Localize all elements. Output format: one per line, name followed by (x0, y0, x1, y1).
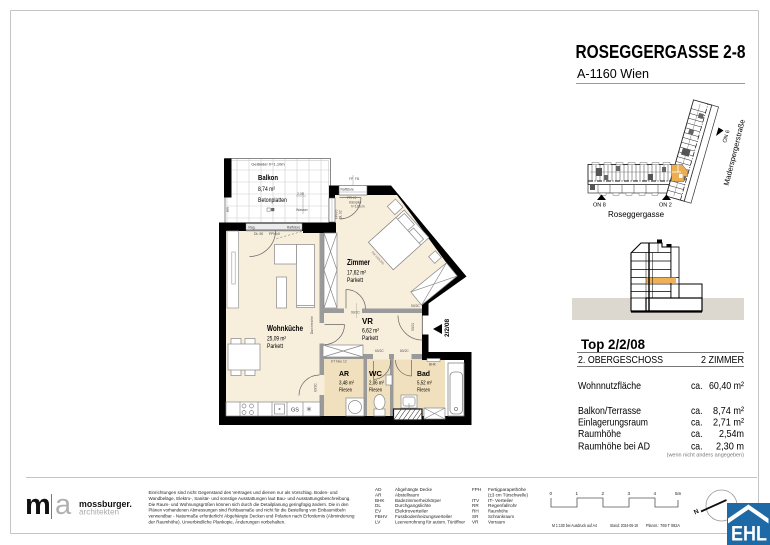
svg-text:Maderspergerstraße: Maderspergerstraße (722, 118, 747, 186)
svg-text:ON 2: ON 2 (659, 203, 672, 209)
svg-text:ITV: ITV (472, 498, 480, 503)
svg-text:EHL: EHL (731, 522, 767, 545)
svg-text:80/2C: 80/2C (400, 349, 409, 353)
svg-text:2: 2 (602, 491, 605, 496)
svg-text:ON 8: ON 8 (593, 203, 606, 209)
svg-text:WC: WC (369, 369, 383, 378)
svg-text:Rag.: Rag. (249, 226, 256, 230)
svg-text:Abstellraum: Abstellraum (395, 492, 419, 497)
svg-text:FPH: FPH (472, 487, 481, 492)
svg-text:4: 4 (654, 491, 657, 496)
svg-text:Plänen vorhandenen Abmessungen: Plänen vorhandenen Abmessungen sind Rohb… (149, 508, 346, 513)
svg-text:M 1:100 bei Ausdruck auf A4: M 1:100 bei Ausdruck auf A4 (552, 523, 597, 528)
svg-text:VR: VR (362, 317, 373, 326)
svg-text:Parkett: Parkett (347, 278, 363, 284)
svg-text:AR: AR (375, 492, 382, 497)
svg-text:Einlagerungsraum: Einlagerungsraum (578, 417, 648, 429)
svg-text:N: N (693, 508, 700, 516)
svg-text:(±3 cm Türschwelle): (±3 cm Türschwelle) (488, 492, 528, 497)
svg-text:DL 92: DL 92 (339, 210, 343, 219)
svg-text:VR: VR (472, 519, 479, 524)
svg-text:Plannr.: 769 T 082A: Plannr.: 769 T 082A (646, 523, 681, 528)
svg-text:Abgehängte Decke: Abgehängte Decke (395, 487, 432, 492)
svg-text:FPH 0: FPH 0 (347, 196, 357, 200)
svg-text:Vorraum: Vorraum (488, 519, 505, 524)
svg-text:Geländer h=1,10m: Geländer h=1,10m (251, 162, 285, 167)
svg-text:5m: 5m (675, 491, 682, 496)
svg-text:Fussbodenheizungsverteiler: Fussbodenheizungsverteiler (395, 514, 452, 519)
svg-text:Raffstore: Raffstore (341, 188, 354, 192)
svg-text:Bad: Bad (417, 369, 430, 378)
svg-text:AD: AD (375, 487, 382, 492)
svg-text:2,06 m²: 2,06 m² (369, 381, 384, 387)
svg-text:Betonplatten: Betonplatten (258, 198, 287, 204)
svg-text:2/2/08: 2/2/08 (444, 319, 451, 337)
svg-text:2,30 m: 2,30 m (716, 441, 744, 453)
svg-text:Fliesen: Fliesen (369, 388, 382, 394)
svg-text:1: 1 (576, 491, 579, 496)
svg-text:2,00: 2,00 (297, 192, 304, 196)
svg-text:FB: FB (355, 177, 360, 181)
svg-text:90/2C: 90/2C (351, 311, 360, 315)
svg-text:SR: SR (472, 514, 479, 519)
svg-text:3: 3 (628, 491, 631, 496)
svg-text:RR: RR (226, 206, 230, 212)
svg-text:ca.: ca. (691, 380, 703, 392)
svg-text:RR: RR (472, 503, 479, 508)
svg-text:h=120cm: h=120cm (351, 205, 365, 209)
svg-text:2 ZIMMER: 2 ZIMMER (701, 354, 744, 366)
svg-text:Leerverrohrung für autom. Türö: Leerverrohrung für autom. Türöffner (395, 519, 465, 524)
svg-text:5,52 m²: 5,52 m² (417, 381, 432, 387)
svg-text:0: 0 (550, 491, 553, 496)
svg-text:der Raumhöhe). Unverbindliche: der Raumhöhe). Unverbindliche Plankopie,… (149, 519, 286, 525)
svg-text:Wohnküche: Wohnküche (267, 324, 303, 333)
svg-text:DL 90: DL 90 (254, 232, 263, 236)
svg-text:Raumhöhe: Raumhöhe (488, 509, 508, 514)
svg-text:KT Neo 12: KT Neo 12 (331, 360, 347, 364)
svg-text:Wasser: Wasser (296, 208, 309, 212)
svg-text:8,74 m²: 8,74 m² (258, 187, 275, 193)
svg-text:Raumhöhe: Raumhöhe (578, 428, 621, 440)
svg-text:Elektroverteiler: Elektroverteiler (395, 509, 429, 514)
svg-text:60,40 m²: 60,40 m² (709, 380, 744, 392)
svg-text:Regenfallrohr: Regenfallrohr (488, 503, 517, 508)
svg-text:90/21: 90/21 (411, 323, 415, 331)
svg-text:BHK: BHK (375, 498, 385, 503)
svg-text:Raumhöhe bei AD: Raumhöhe bei AD (578, 441, 650, 453)
svg-text:ca.: ca. (691, 405, 703, 417)
svg-text:Balkon: Balkon (258, 173, 278, 182)
svg-text:DL: DL (375, 503, 381, 508)
svg-text:Die Raum- und Wohnungsgrößen k: Die Raum- und Wohnungsgrößen können sich… (149, 502, 349, 507)
svg-text:ca.: ca. (691, 417, 703, 429)
svg-text:ca.: ca. (691, 428, 703, 440)
svg-text:80/2C: 80/2C (314, 383, 318, 392)
svg-text:Parkett: Parkett (362, 336, 378, 342)
svg-text:Stand: 2024-06-19: Stand: 2024-06-19 (610, 523, 638, 528)
svg-text:25,09 m²: 25,09 m² (267, 337, 286, 343)
svg-text:Parkett: Parkett (267, 344, 283, 350)
svg-text:6,62 m²: 6,62 m² (362, 329, 379, 335)
svg-text:2. OBERGESCHOSS: 2. OBERGESCHOSS (578, 354, 663, 366)
svg-text:Top 2/2/08: Top 2/2/08 (581, 336, 645, 352)
svg-text:m: m (25, 489, 51, 521)
svg-text:A-1160 Wien: A-1160 Wien (577, 67, 649, 81)
svg-text:60/2C: 60/2C (375, 349, 384, 353)
svg-text:Schrankraum: Schrankraum (488, 514, 514, 519)
svg-text:Einrichtungen sind nicht Gegen: Einrichtungen sind nicht Gegenstand des … (149, 490, 338, 495)
svg-text:IT- Verteiler: IT- Verteiler (488, 498, 513, 503)
svg-text:Wohnnutzfläche: Wohnnutzfläche (578, 380, 641, 392)
svg-text:3,48 m²: 3,48 m² (339, 381, 354, 387)
svg-text:Wandbeläge, Elektro-, Sanitär-: Wandbeläge, Elektro-, Sanitär- und sonst… (149, 496, 351, 501)
svg-text:FP: FP (349, 177, 354, 181)
svg-text:GS: GS (291, 408, 299, 414)
svg-text:Balkon/Terrasse: Balkon/Terrasse (578, 405, 641, 417)
svg-text:FBHV: FBHV (375, 514, 388, 519)
svg-text:(wenn nicht anders angegeben): (wenn nicht anders angegeben) (667, 453, 745, 459)
svg-text:Fliesen: Fliesen (417, 388, 430, 394)
svg-text:BHK: BHK (429, 363, 437, 367)
svg-text:Badezimmerheizkörper: Badezimmerheizkörper (395, 498, 441, 503)
svg-text:Raffstore: Raffstore (287, 226, 300, 230)
svg-text:ON 6: ON 6 (722, 130, 731, 144)
svg-text:RH: RH (472, 509, 479, 514)
svg-text:ROSEGGERGASSE 2-8: ROSEGGERGASSE 2-8 (576, 42, 746, 62)
svg-text:EV: EV (375, 509, 382, 514)
svg-text:Zimmer: Zimmer (347, 258, 370, 267)
svg-text:AR: AR (339, 369, 350, 378)
svg-text:FPH±0: FPH±0 (269, 232, 280, 236)
svg-text:8,74 m²: 8,74 m² (713, 405, 744, 417)
svg-text:Fertigparapethöhe: Fertigparapethöhe (488, 487, 526, 492)
svg-text:a: a (55, 489, 72, 521)
svg-text:17,62 m²: 17,62 m² (347, 271, 366, 277)
svg-text:Fliesen: Fliesen (339, 388, 352, 394)
svg-text:LV: LV (375, 519, 381, 524)
svg-text:verwendbar - Naturmaße erforde: verwendbar - Naturmaße erforderlich! Abg… (149, 514, 355, 519)
svg-text:architekten: architekten (79, 508, 119, 517)
svg-text:2,71 m²: 2,71 m² (713, 417, 744, 429)
svg-text:Durchgangslichte: Durchgangslichte (395, 503, 431, 508)
svg-text:Durchreiche: Durchreiche (310, 316, 314, 334)
svg-text:90/2C: 90/2C (411, 304, 420, 308)
svg-text:2,54m: 2,54m (719, 428, 744, 440)
svg-text:Roseggergasse: Roseggergasse (608, 210, 665, 219)
svg-text:ca.: ca. (691, 441, 703, 453)
